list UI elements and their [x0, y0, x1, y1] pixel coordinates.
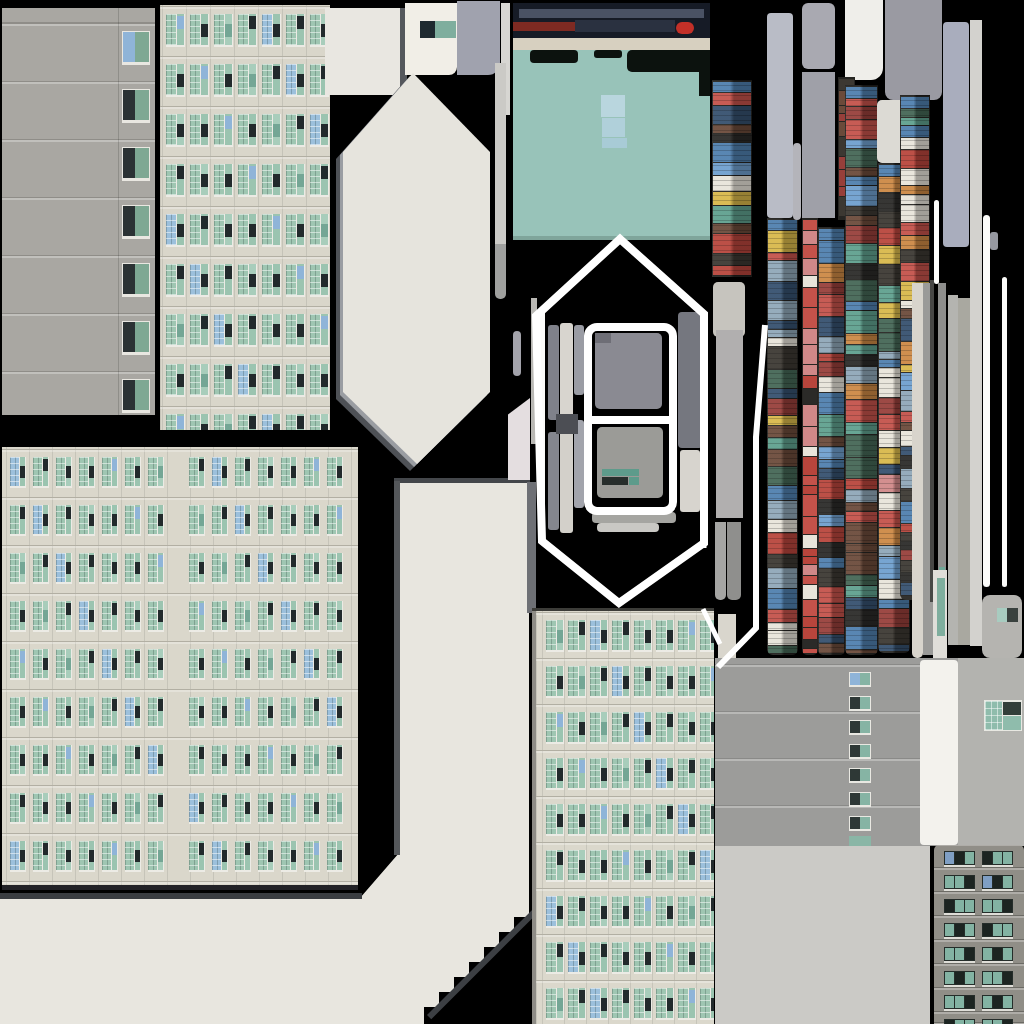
window — [568, 804, 586, 836]
window — [982, 851, 1013, 867]
window-pane-area — [245, 505, 250, 534]
window-pane — [850, 697, 860, 709]
gray-stub — [793, 143, 801, 220]
window-pane-area — [273, 364, 280, 395]
window-pane-area — [321, 214, 328, 245]
window-pane-area — [245, 697, 250, 726]
window — [102, 697, 118, 728]
window-pane — [945, 972, 954, 984]
window-glass — [190, 64, 200, 95]
window-pane — [689, 760, 695, 773]
window-pane — [579, 760, 585, 773]
window-pane — [43, 754, 48, 766]
window-pane-area — [645, 758, 651, 788]
window — [612, 712, 630, 744]
window — [166, 64, 185, 97]
window-pane — [158, 754, 163, 766]
window-pane-area — [579, 712, 585, 742]
window-pane — [89, 754, 94, 766]
window — [122, 31, 150, 65]
window-glass — [235, 793, 244, 822]
window-pane — [199, 747, 204, 759]
window — [281, 457, 297, 488]
window-glass — [590, 758, 600, 788]
tile-grid-block — [325, 8, 401, 95]
window-glass — [281, 793, 290, 822]
window — [546, 666, 564, 698]
window-pane-area — [557, 804, 563, 834]
beige-bit — [718, 614, 736, 658]
window-pane-area — [245, 745, 250, 774]
window — [238, 164, 257, 197]
window — [190, 364, 209, 397]
window — [212, 457, 228, 488]
window-pane — [993, 948, 1002, 960]
glass-bottom-line — [513, 236, 710, 240]
window-pane-area — [177, 264, 184, 295]
window-glass — [148, 601, 157, 630]
window-pane — [225, 174, 232, 187]
window-glass — [258, 793, 267, 822]
window-pane-area — [321, 364, 328, 395]
window-pane-area — [297, 64, 304, 95]
window — [189, 457, 205, 488]
window-glass — [79, 841, 88, 870]
window-glass — [281, 601, 290, 630]
window — [189, 649, 205, 680]
window-pane — [177, 74, 184, 87]
window — [678, 666, 696, 698]
window-glass — [281, 553, 290, 582]
window-glass — [327, 505, 336, 534]
window-pane — [273, 174, 280, 187]
window-pane — [321, 224, 328, 237]
window-glass — [212, 697, 221, 726]
window — [327, 697, 343, 728]
window-pane — [158, 514, 163, 526]
window-pane — [177, 224, 184, 237]
window-pane — [297, 16, 304, 29]
window-glass — [148, 649, 157, 678]
window — [235, 505, 251, 536]
window — [612, 942, 630, 974]
window-glass — [634, 896, 644, 926]
window — [304, 505, 320, 536]
window-pane — [112, 802, 117, 814]
gray-square-top — [595, 333, 662, 409]
window-glass — [304, 457, 313, 486]
window-glass — [235, 553, 244, 582]
window-glass — [546, 712, 556, 742]
window-glass — [189, 649, 198, 678]
window-pane — [249, 274, 256, 287]
window-pane — [222, 754, 227, 766]
window — [56, 457, 72, 488]
window-pane — [623, 714, 629, 727]
window-pane-area — [249, 314, 256, 345]
window-pane — [273, 424, 280, 430]
window — [102, 841, 118, 872]
window-pane-area — [667, 758, 673, 788]
window — [189, 793, 205, 824]
window — [56, 553, 72, 584]
window-pane-area — [112, 457, 117, 486]
window-pane — [112, 562, 117, 574]
window — [849, 720, 871, 735]
window-pane — [201, 274, 208, 287]
window-glass — [10, 697, 19, 726]
window-pane-area — [557, 666, 563, 696]
window-pane — [89, 706, 94, 718]
window — [189, 745, 205, 776]
window-pane-area — [135, 601, 140, 630]
sign-segment — [803, 329, 817, 344]
window-pane — [314, 562, 319, 574]
window-pane — [225, 324, 232, 337]
window-pane — [43, 555, 48, 567]
window — [634, 712, 652, 744]
window-pane-area — [297, 164, 304, 195]
window-pane — [245, 754, 250, 766]
window-pane — [291, 610, 296, 622]
window-glass — [568, 620, 578, 650]
window-glass — [656, 712, 666, 742]
window — [262, 214, 281, 247]
window-pane-area — [601, 712, 607, 742]
window — [212, 697, 228, 728]
window-pane — [20, 850, 25, 862]
window-glass — [238, 364, 248, 395]
window-pane — [268, 747, 273, 759]
window-pane-area — [20, 601, 25, 630]
window-pane-area — [89, 649, 94, 678]
window — [590, 666, 608, 698]
window — [212, 793, 228, 824]
window — [10, 793, 26, 824]
sign-segment — [803, 447, 817, 456]
sign-segment — [803, 549, 817, 556]
window — [148, 649, 164, 680]
window-pane-area — [273, 14, 280, 45]
window — [10, 745, 26, 776]
window-pane — [601, 944, 607, 957]
window-glass — [238, 314, 248, 345]
gray-strip-segment-dark — [495, 244, 506, 299]
window-pane-area — [601, 988, 607, 1018]
window — [190, 64, 209, 97]
window-glass — [33, 745, 42, 774]
window-glass — [700, 666, 710, 696]
window-pane-area — [225, 414, 232, 430]
window-pane — [337, 651, 342, 663]
white-bar — [983, 215, 990, 587]
window-pane — [645, 814, 651, 827]
window-glass — [700, 896, 710, 926]
window — [634, 896, 652, 928]
window-glass — [190, 214, 200, 245]
window — [281, 697, 297, 728]
window-glass — [33, 697, 42, 726]
window-pane — [225, 424, 232, 430]
window-glass — [678, 804, 688, 834]
window-pane — [689, 622, 695, 635]
window-pane-area — [43, 793, 48, 822]
window-glass — [860, 793, 870, 805]
window-pane-area — [337, 553, 342, 582]
window-pane — [201, 316, 208, 329]
blue-text-marks — [774, 166, 779, 212]
window-pane — [557, 998, 563, 1011]
window-glass — [281, 649, 290, 678]
window-pane-area — [20, 649, 25, 678]
window — [678, 850, 696, 882]
window-glass — [102, 697, 111, 726]
window-pane-area — [222, 553, 227, 582]
window-glass — [262, 114, 272, 145]
window — [33, 649, 49, 680]
window-pane — [135, 706, 140, 718]
photo-windows — [519, 9, 704, 18]
window — [546, 850, 564, 882]
window — [212, 505, 228, 536]
window-pane-area — [314, 841, 319, 870]
window-pane-area — [601, 850, 607, 880]
window-glass — [56, 793, 65, 822]
window-pane-area — [623, 988, 629, 1018]
tall-grid-strip — [767, 13, 793, 218]
window-pane-area — [579, 942, 585, 972]
photo-overlay — [712, 80, 752, 277]
window-pane-area — [557, 988, 563, 1018]
window-pane-area — [337, 649, 342, 678]
window — [214, 164, 233, 197]
window-pane-area — [689, 850, 695, 880]
window-pane-area — [291, 841, 296, 870]
window-pane — [20, 651, 25, 663]
window-pane-area — [297, 414, 304, 430]
window — [700, 942, 714, 974]
window — [238, 264, 257, 297]
window-pane — [291, 651, 296, 663]
window-glass — [612, 988, 622, 1018]
window — [258, 841, 274, 872]
window-glass — [102, 793, 111, 822]
beige-band — [513, 38, 710, 50]
window — [125, 505, 141, 536]
window-pane-area — [557, 850, 563, 880]
small-window — [849, 836, 871, 846]
window-glass — [166, 114, 176, 145]
facade-left-edge — [532, 611, 536, 1024]
window — [33, 841, 49, 872]
window-pane-area — [199, 457, 204, 486]
window-glass — [190, 264, 200, 295]
window-pane-area — [297, 214, 304, 245]
window-sill — [982, 985, 1013, 987]
window-pane — [89, 610, 94, 622]
window — [262, 414, 281, 430]
window-pane — [135, 562, 140, 574]
hex-bar-right — [678, 312, 703, 448]
window — [166, 214, 185, 247]
window-pane — [245, 514, 250, 526]
window-pane — [955, 948, 964, 960]
window-pane — [123, 32, 135, 62]
window-glass — [33, 505, 42, 534]
window — [125, 553, 141, 584]
window-glass — [235, 601, 244, 630]
window-pane — [123, 322, 135, 352]
window-pane — [623, 906, 629, 919]
window-pane — [850, 817, 860, 829]
window-pane — [965, 900, 974, 912]
window-glass — [656, 896, 666, 926]
window-glass — [148, 793, 157, 822]
window-glass — [212, 553, 221, 582]
window-pane-area — [623, 758, 629, 788]
window — [327, 793, 343, 824]
window — [212, 745, 228, 776]
window-pane-area — [557, 942, 563, 972]
window-glass — [166, 364, 176, 395]
window — [148, 697, 164, 728]
window-pane — [177, 416, 184, 429]
window — [678, 942, 696, 974]
mini-window-teal — [629, 477, 639, 485]
window-pane-area — [201, 364, 208, 395]
window — [166, 364, 185, 397]
window-pane — [273, 124, 280, 137]
big-beige-facade — [2, 447, 358, 887]
window-glass — [700, 712, 710, 742]
window-pane-area — [601, 620, 607, 650]
window-pane — [1003, 924, 1012, 936]
window-pane — [711, 630, 714, 643]
window-pane-area — [337, 793, 342, 822]
window — [982, 923, 1013, 939]
window — [944, 899, 975, 915]
window-glass — [79, 697, 88, 726]
window-glass — [286, 264, 296, 295]
window-pane-area — [177, 414, 184, 430]
window-pane — [43, 843, 48, 855]
hex-bar — [548, 432, 559, 530]
window-pane-area — [20, 841, 25, 870]
window — [102, 601, 118, 632]
window — [678, 804, 696, 836]
window-pane-area — [291, 649, 296, 678]
window-pane-area — [89, 601, 94, 630]
window-glass — [304, 841, 313, 870]
window-pane-area — [268, 601, 273, 630]
window-pane-area — [249, 264, 256, 295]
window — [33, 793, 49, 824]
window-glass — [286, 364, 296, 395]
window-pane-area — [20, 505, 25, 534]
window-pane — [135, 747, 140, 759]
window — [235, 793, 251, 824]
window — [849, 768, 871, 783]
window-pane — [199, 562, 204, 574]
window-glass — [56, 697, 65, 726]
window-pane-area — [158, 649, 163, 678]
window-pane — [965, 1020, 974, 1024]
rounded-panel — [982, 595, 1022, 658]
window-pane-area — [321, 414, 328, 430]
bottom-middle-facade — [532, 611, 714, 1024]
window-pane-area — [273, 214, 280, 245]
window-glass — [612, 666, 622, 696]
window-glass — [238, 64, 248, 95]
window-pane — [321, 274, 328, 287]
window-pane — [945, 996, 954, 1008]
window-pane-area — [314, 745, 319, 774]
window-pane-area — [337, 505, 342, 534]
window-pane-area — [711, 988, 714, 1018]
window — [235, 649, 251, 680]
grid-strip — [943, 22, 969, 247]
window-pane — [314, 754, 319, 766]
window-glass — [262, 214, 272, 245]
window-pane — [245, 802, 250, 814]
window-pane — [1003, 900, 1012, 912]
window-glass — [258, 745, 267, 774]
window-pane — [268, 562, 273, 574]
window — [148, 457, 164, 488]
window-pane — [112, 514, 117, 526]
window — [262, 14, 281, 47]
window-pane-area — [557, 896, 563, 926]
window-pane — [623, 852, 629, 865]
window-sill — [944, 985, 975, 987]
window-pane-area — [557, 620, 563, 650]
window-glass — [546, 620, 556, 650]
window — [656, 896, 674, 928]
window-pane-area — [177, 314, 184, 345]
window-pane-area — [711, 850, 714, 880]
window-pane-area — [201, 14, 208, 45]
window-pane-area — [20, 745, 25, 774]
window-glass — [125, 553, 134, 582]
window-pane-area — [297, 14, 304, 45]
window-glass — [281, 841, 290, 870]
window-pane — [43, 699, 48, 711]
window-sill — [982, 1009, 1013, 1011]
window-glass — [166, 414, 176, 430]
window-pane-area — [158, 745, 163, 774]
window-pane-area — [20, 457, 25, 486]
window — [235, 457, 251, 488]
window-pane-area — [689, 804, 695, 834]
sign-segment — [803, 585, 817, 599]
window-pane-area — [667, 620, 673, 650]
window — [212, 553, 228, 584]
window-glass — [79, 793, 88, 822]
window-glass — [214, 64, 224, 95]
window-pane — [177, 16, 184, 29]
window-pane — [601, 806, 607, 819]
window — [678, 988, 696, 1020]
window-pane — [66, 507, 71, 519]
window — [10, 841, 26, 872]
window-pane-area — [273, 64, 280, 95]
window — [546, 942, 564, 974]
window — [33, 505, 49, 536]
window-glass — [546, 666, 556, 696]
photo-overlay — [767, 218, 798, 655]
window-pane-area — [711, 712, 714, 742]
window-pane-area — [177, 364, 184, 395]
